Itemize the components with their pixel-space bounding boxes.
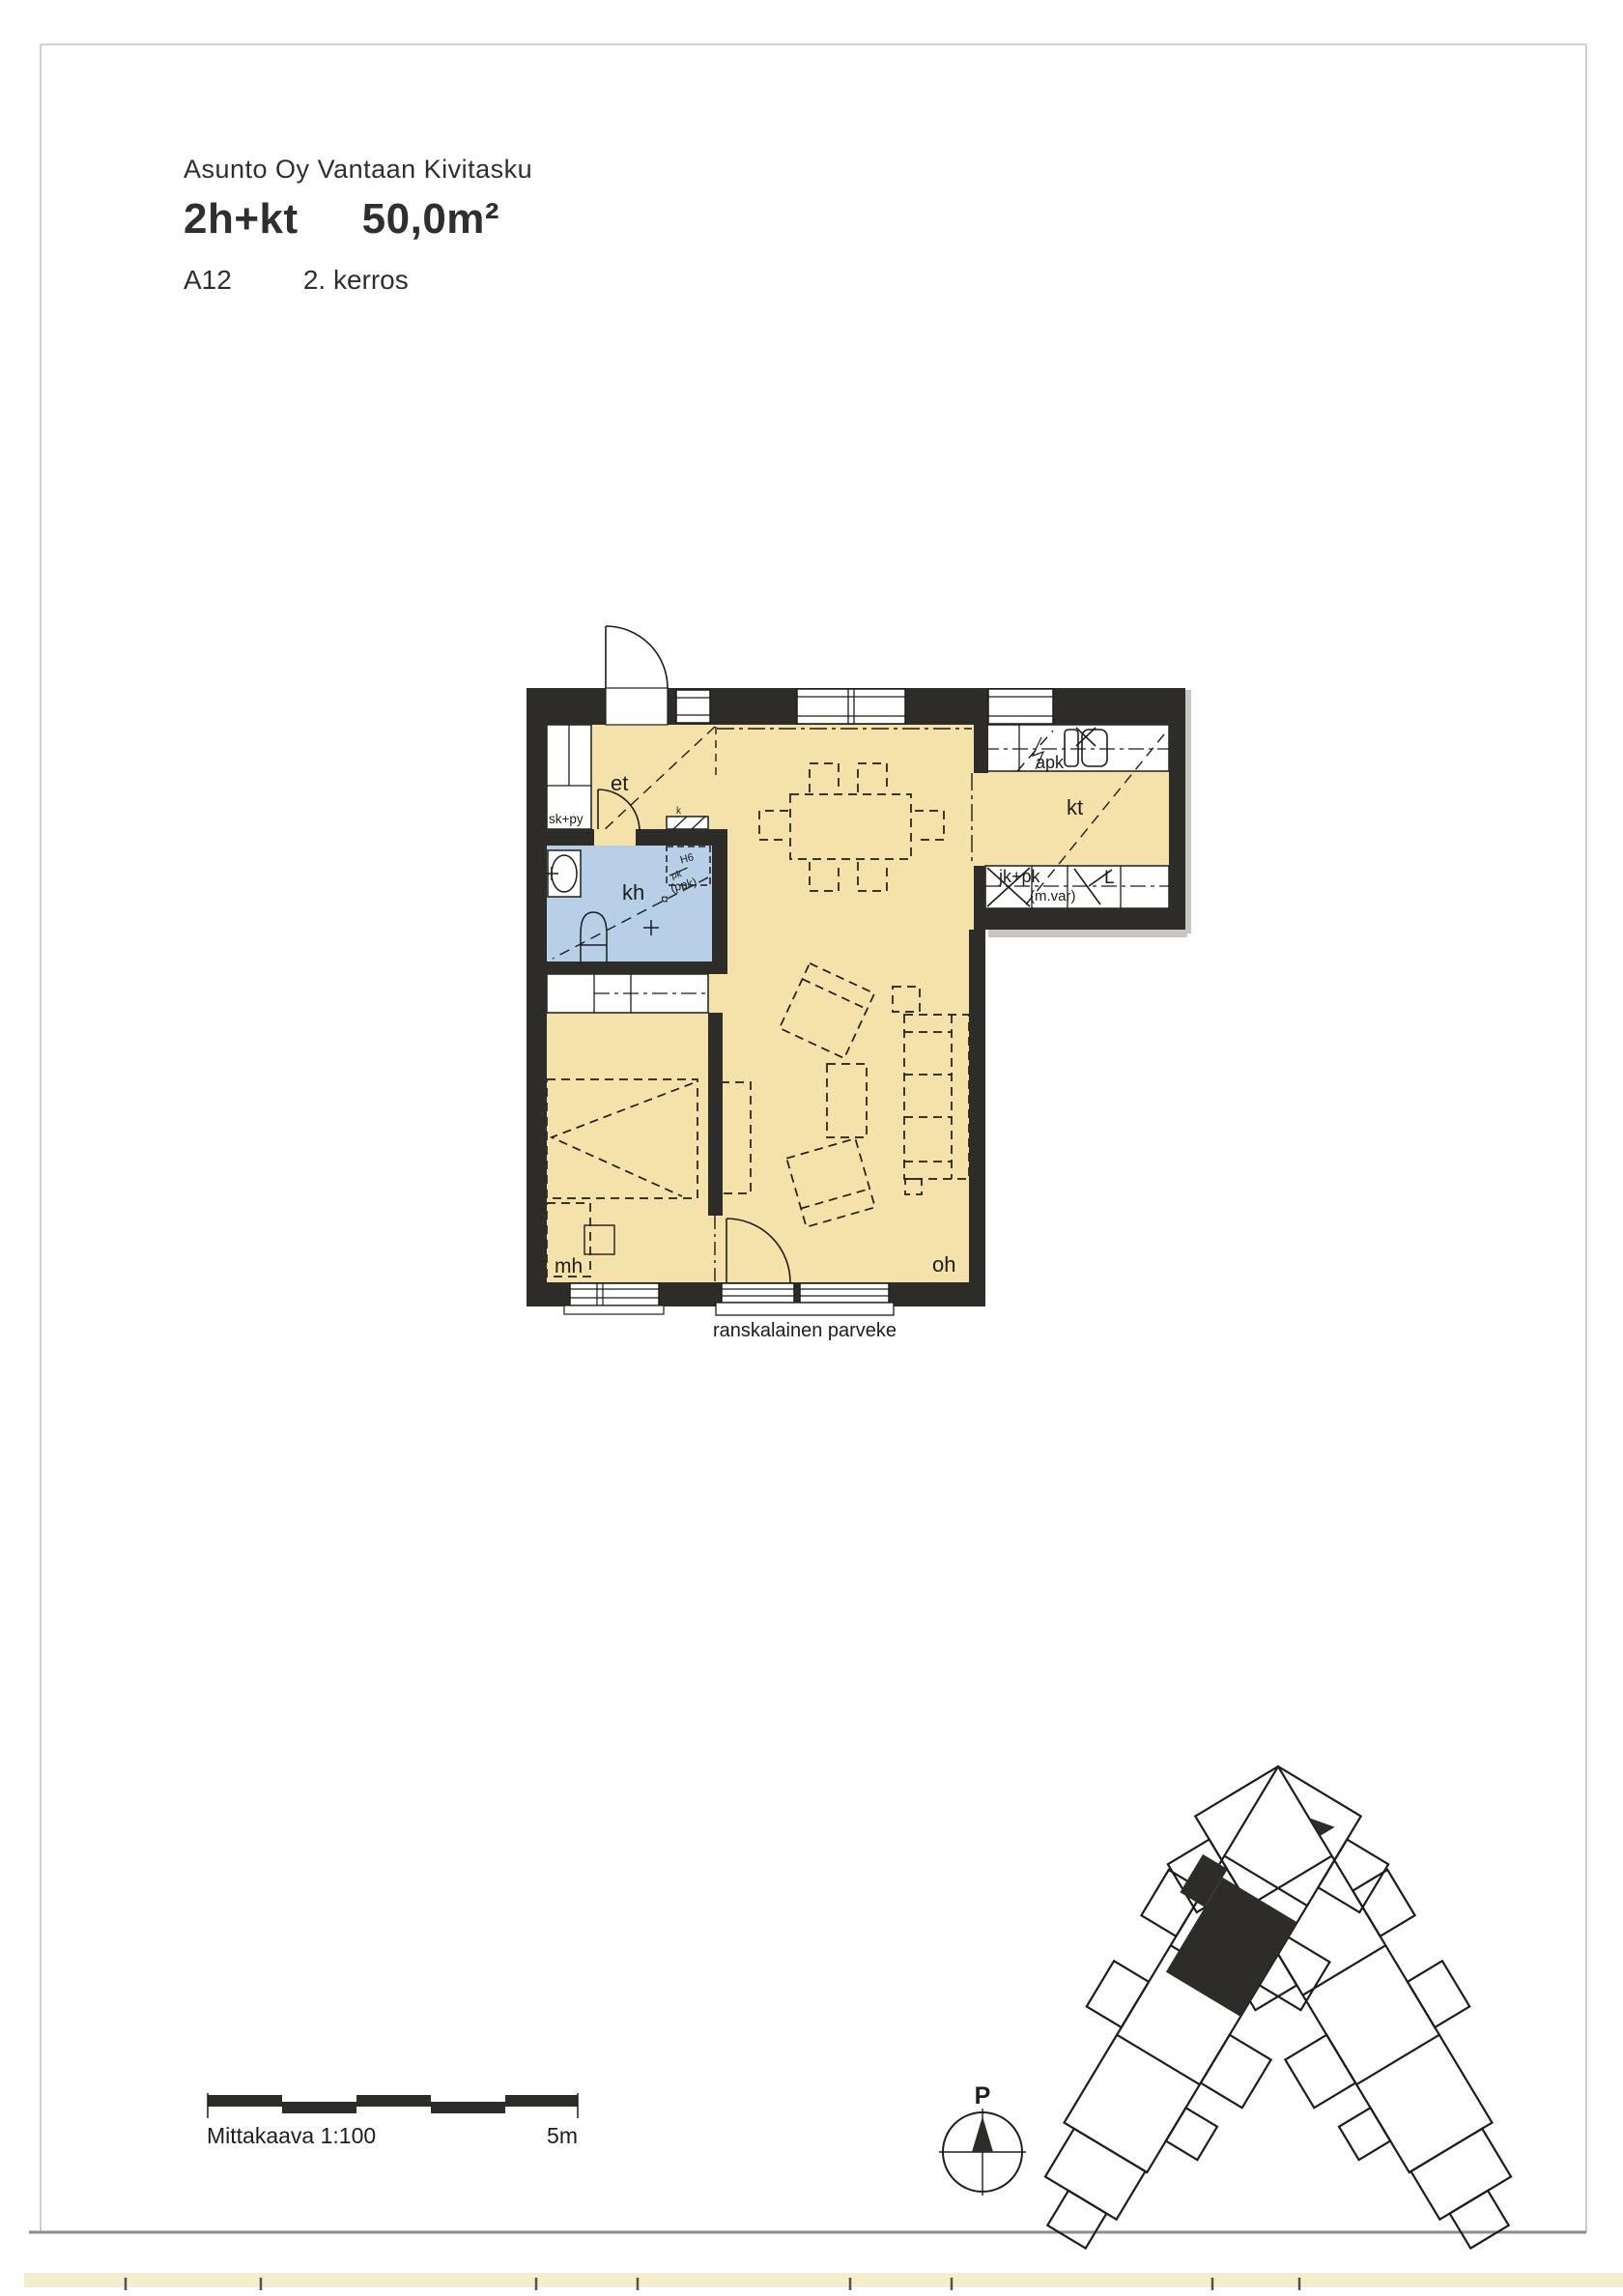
room-label-kh: kh bbox=[622, 880, 644, 904]
scale-segment bbox=[431, 2102, 505, 2113]
site-wing-right bbox=[1153, 1745, 1577, 2280]
apartment-id: A12 bbox=[184, 265, 232, 296]
balcony-door bbox=[722, 1283, 794, 1303]
balcony-label: ranskalainen parveke bbox=[713, 1320, 897, 1341]
floor-plan-page: et kh mh oh kt sk+py apk jk+pk (m.var) L… bbox=[0, 0, 1623, 2296]
scale-segment bbox=[356, 2095, 431, 2107]
window bbox=[676, 690, 710, 723]
apartment-plan: et kh mh oh kt sk+py apk jk+pk (m.var) L… bbox=[527, 626, 1191, 1341]
window-sill bbox=[564, 1306, 664, 1314]
room-label-oh: oh bbox=[932, 1252, 955, 1277]
window bbox=[564, 1283, 664, 1314]
wall-scan-shadow bbox=[1185, 690, 1191, 933]
site-balcony-outer bbox=[1087, 1961, 1149, 2027]
title-block: Asunto Oy Vantaan Kivitasku 2h+kt 50,0m²… bbox=[184, 155, 532, 296]
label-closet: sk+py bbox=[549, 812, 584, 826]
scale-segment bbox=[505, 2095, 578, 2107]
north-needle bbox=[972, 2116, 993, 2152]
window bbox=[988, 689, 1053, 724]
site-balcony-outer bbox=[1408, 1961, 1469, 2027]
apartment-location: A12 2. kerros bbox=[184, 265, 532, 296]
site-balcony-small bbox=[1339, 2108, 1390, 2160]
apartment-area: 50,0m² bbox=[362, 195, 499, 244]
site-balcony-outer bbox=[1352, 1870, 1414, 1937]
scale-label: Mittakaava 1:100 bbox=[207, 2123, 376, 2148]
scale-segment bbox=[208, 2095, 282, 2107]
label-floor-drain: ¤ bbox=[661, 891, 669, 906]
scan-bottom-edge bbox=[24, 2273, 1623, 2290]
scale-bar-segments bbox=[208, 2095, 578, 2113]
site-balcony bbox=[1285, 2035, 1355, 2108]
entry-door-opening bbox=[606, 688, 668, 725]
apartment-type: 2h+kt bbox=[184, 195, 299, 244]
site-balcony bbox=[1201, 2035, 1271, 2108]
apartment-floor: 2. kerros bbox=[303, 265, 409, 296]
room-label-kt: kt bbox=[1067, 795, 1083, 819]
scale-bar: Mittakaava 1:100 5m bbox=[207, 2093, 578, 2148]
label-dishwasher: apk bbox=[1036, 753, 1065, 772]
north-label: P bbox=[975, 2082, 991, 2109]
label-fridge: jk+pk bbox=[998, 867, 1041, 886]
site-end-block-small bbox=[1450, 2191, 1509, 2249]
label-micro-reserve: (m.var) bbox=[1030, 888, 1076, 904]
scan-edge-strip bbox=[24, 2273, 1623, 2287]
room-label-et: et bbox=[611, 771, 628, 795]
north-arrow: P bbox=[939, 2082, 1026, 2196]
plan-drawing: et kh mh oh kt sk+py apk jk+pk (m.var) L… bbox=[0, 0, 1623, 2296]
apartment-summary: 2h+kt 50,0m² bbox=[184, 195, 532, 244]
site-wing-left bbox=[980, 1745, 1403, 2280]
site-end-block-small bbox=[1047, 2191, 1106, 2249]
housing-company-name: Asunto Oy Vantaan Kivitasku bbox=[184, 155, 532, 185]
room-label-mh: mh bbox=[555, 1255, 583, 1277]
site-balcony-small bbox=[1166, 2108, 1217, 2160]
site-unit-dividers bbox=[1249, 1856, 1439, 2085]
site-entrance-mark bbox=[1309, 1809, 1335, 1836]
kitchen-counter-top bbox=[983, 725, 1169, 771]
wall-scan-shadow bbox=[988, 930, 1187, 937]
site-plan bbox=[980, 1745, 1577, 2280]
french-balcony-rail bbox=[716, 1303, 894, 1315]
vent-cabinet bbox=[667, 817, 708, 829]
entry-door-arc bbox=[606, 626, 668, 688]
window bbox=[797, 689, 905, 724]
window bbox=[800, 1283, 889, 1303]
scale-max-label: 5m bbox=[547, 2123, 578, 2148]
label-stove: L bbox=[1104, 868, 1115, 888]
scale-segment bbox=[282, 2102, 356, 2113]
